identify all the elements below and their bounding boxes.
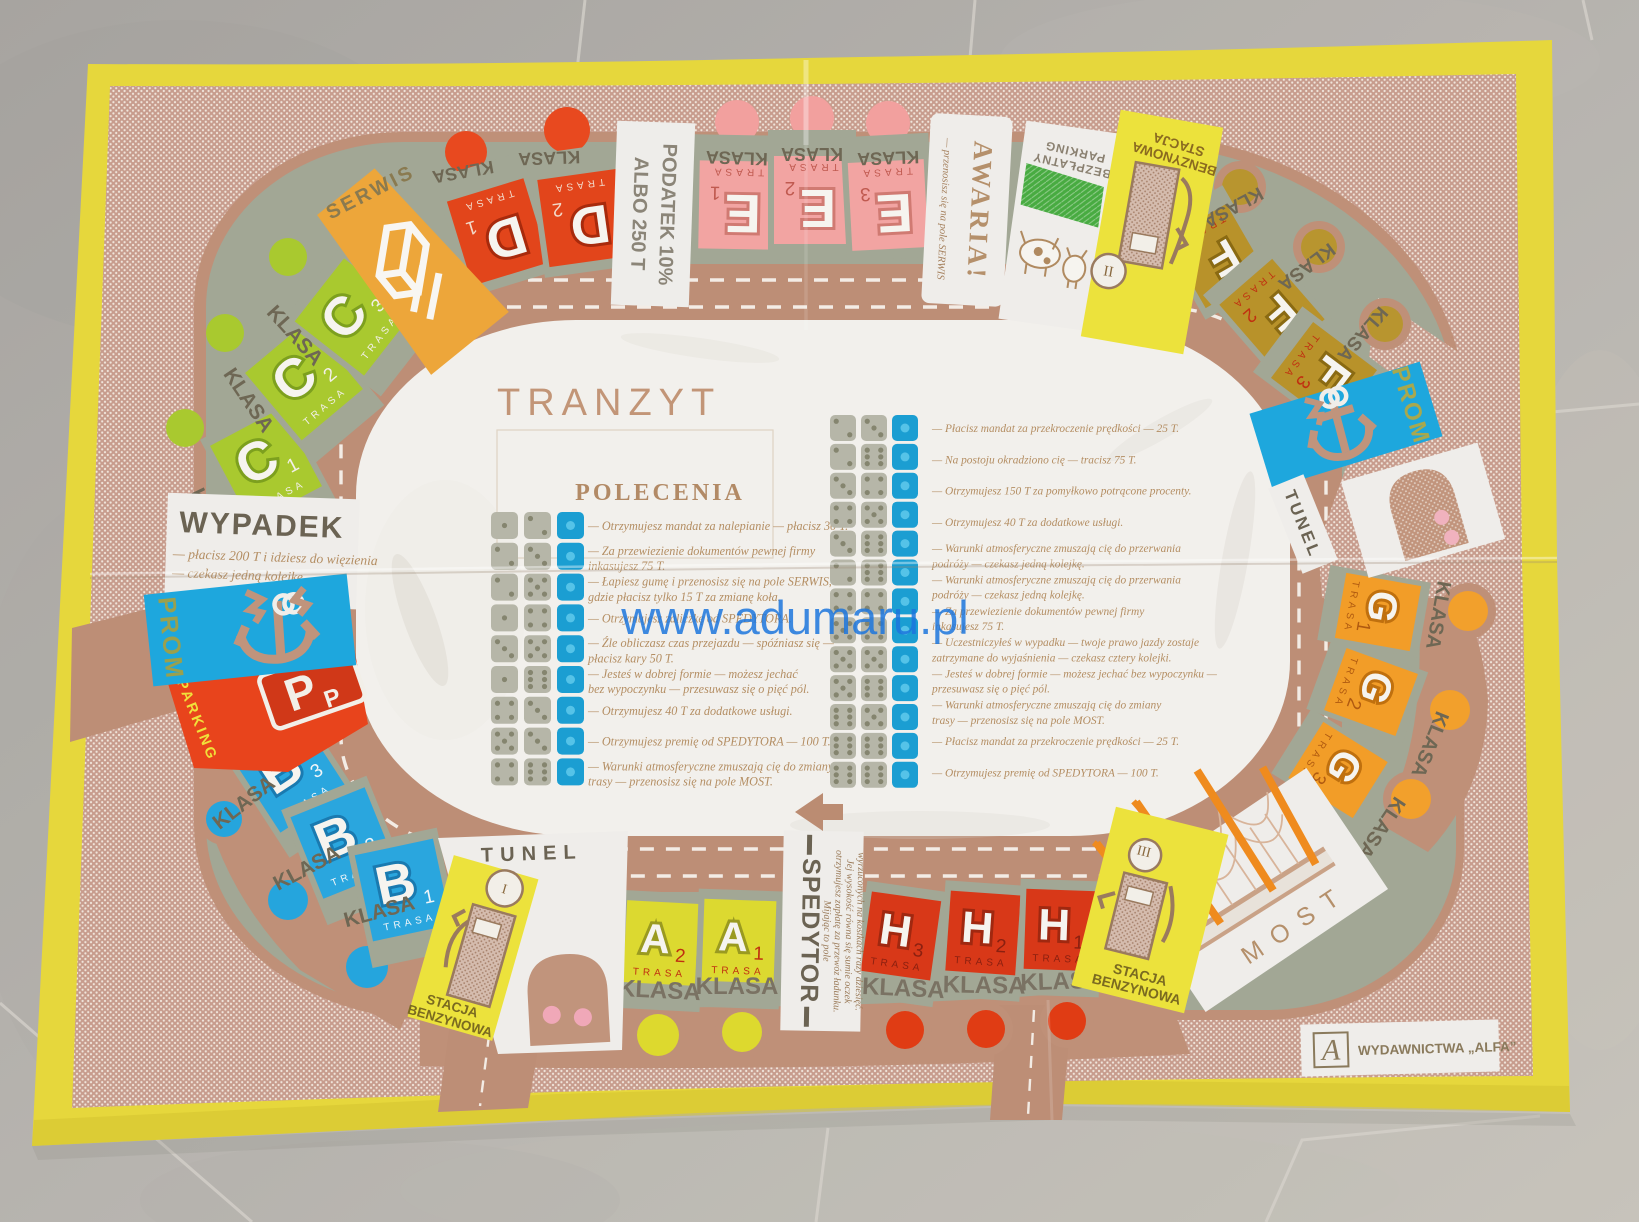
svg-text:KLASA: KLASA [943,971,1026,999]
svg-text:TRANZYT: TRANZYT [497,382,721,424]
svg-text:H: H [960,903,995,954]
svg-text:H: H [1037,900,1070,950]
svg-text:— Jesteś w dobrej formie — moż: — Jesteś w dobrej formie — możesz jechać… [931,668,1218,680]
svg-text:KLASA: KLASA [781,144,843,164]
svg-text:— Warunki atmosferyczne zmusza: — Warunki atmosferyczne zmuszają cię do … [931,543,1181,555]
svg-text:H: H [877,904,915,957]
svg-text:— Otrzymujesz premię od SPEDYT: — Otrzymujesz premię od SPEDYTORA — 100 … [931,767,1159,779]
svg-text:KLASA: KLASA [857,147,920,169]
svg-text:KLASA: KLASA [617,975,701,1006]
svg-text:A: A [1319,1034,1341,1068]
svg-text:— Warunki atmosferyczne zmusza: — Warunki atmosferyczne zmuszają cię do … [587,759,834,773]
svg-text:Mijając to pole: Mijając to pole [820,899,832,962]
svg-text:— Jesteś w dobrej formie — moż: — Jesteś w dobrej formie — możesz jechać [587,667,798,681]
svg-text:KLASA: KLASA [696,973,779,1000]
svg-text:KLASA: KLASA [518,147,581,169]
svg-text:KLASA: KLASA [861,973,945,1004]
svg-text:3: 3 [860,183,872,205]
svg-text:— Otrzymujesz 150 T za pomyłko: — Otrzymujesz 150 T za pomyłkowo potrąco… [931,486,1191,498]
svg-text:2: 2 [785,177,796,198]
svg-text:D: D [567,193,614,258]
svg-text:ALBO 250 T: ALBO 250 T [626,156,652,270]
svg-text:podróży — czekasz jedną kolejk: podróży — czekasz jedną kolejkę. [931,558,1085,570]
svg-text:— Za przewiezienie dokumentów: — Za przewiezienie dokumentów pewnej fir… [587,544,816,558]
svg-text:— Warunki atmosferyczne zmusza: — Warunki atmosferyczne zmuszają cię do … [931,575,1181,587]
svg-text:trasy — przenosisz się na pole: trasy — przenosisz się na pole MOST. [932,715,1105,727]
svg-text:— Na postoju okradziono cię —: — Na postoju okradziono cię — tracisz 75… [931,454,1137,466]
svg-text:E: E [875,182,914,244]
svg-text:A: A [718,913,749,960]
svg-text:— Łapiesz gumę i przenosisz si: — Łapiesz gumę i przenosisz się na pole … [587,575,832,589]
svg-text:— Otrzymujesz 40 T za dodatkow: — Otrzymujesz 40 T za dodatkowe usługi. [587,704,793,718]
svg-text:A: A [639,915,671,962]
svg-text:— Uczestniczyłeś w wypadku — t: — Uczestniczyłeś w wypadku — twoje prawo… [931,637,1199,649]
svg-text:POLECENIA: POLECENIA [575,480,745,506]
svg-text:TUNEL: TUNEL [481,841,583,867]
svg-text:— Otrzymujesz premię od SPEDYT: — Otrzymujesz premię od SPEDYTORA — 100 … [587,735,831,749]
svg-text:— Płacisz mandat za przekrocze: — Płacisz mandat za przekroczenie prędko… [931,423,1179,435]
svg-text:WYPADEK: WYPADEK [179,506,345,545]
svg-text:1: 1 [710,182,721,203]
svg-text:2: 2 [674,946,686,968]
svg-text:płacisz kary 50 T.: płacisz kary 50 T. [587,651,674,665]
svg-text:2: 2 [995,936,1007,958]
svg-text:— Warunki atmosferyczne zmusza: — Warunki atmosferyczne zmuszają cię do … [931,700,1162,712]
svg-text:www.adumaru.pl: www.adumaru.pl [620,591,968,644]
svg-text:— Otrzymujesz 40 T za dodatkow: — Otrzymujesz 40 T za dodatkowe usługi. [931,517,1123,529]
svg-text:SPEDYTOR: SPEDYTOR [795,858,826,1004]
svg-text:zatrzymane do wyjaśnienia — cz: zatrzymane do wyjaśnienia — czekasz czte… [931,652,1171,664]
svg-text:przesuwasz się o pięć pól.: przesuwasz się o pięć pól. [931,684,1050,696]
svg-text:bez wypoczynku — przesuwasz si: bez wypoczynku — przesuwasz się o pięć p… [588,682,809,696]
svg-text:KLASA: KLASA [705,147,768,169]
svg-text:1: 1 [753,944,764,965]
svg-text:— Płacisz mandat za przekrocze: — Płacisz mandat za przekroczenie prędko… [931,736,1179,748]
svg-text:E: E [724,183,761,244]
svg-text:trasy — przenosisz się na pole: trasy — przenosisz się na pole MOST. [588,775,773,789]
svg-text:— Otrzymujesz mandat za nalepi: — Otrzymujesz mandat za nalepianie — pła… [587,519,848,533]
